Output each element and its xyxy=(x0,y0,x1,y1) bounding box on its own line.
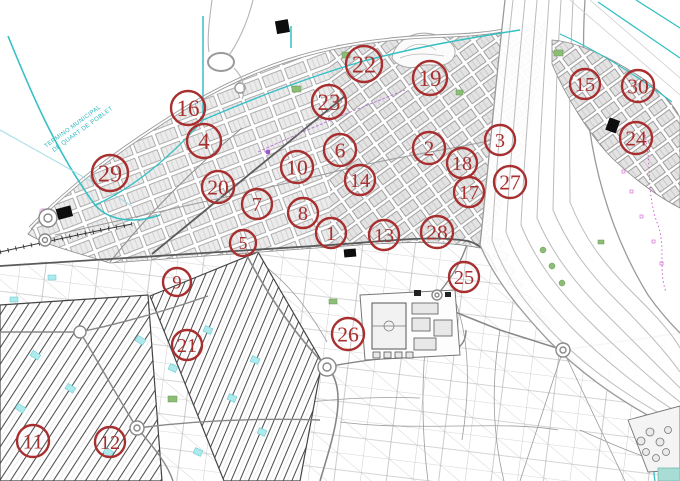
marker-number: 2 xyxy=(424,136,435,160)
marker-number: 15 xyxy=(575,74,595,96)
marker-number: 10 xyxy=(286,155,308,179)
sports-complex xyxy=(360,290,460,360)
marker-number: 1 xyxy=(326,223,336,245)
marker-number: 26 xyxy=(337,322,359,346)
marker-number: 24 xyxy=(625,126,647,150)
marker-number: 27 xyxy=(499,170,521,194)
marker-number: 19 xyxy=(419,66,442,91)
marker-number: 3 xyxy=(495,130,505,152)
city-plan-map: TERMINO MUNICIPAL DE QUART DE POBLET xyxy=(0,0,680,481)
marker-number: 30 xyxy=(627,74,649,98)
marker-number: 7 xyxy=(252,194,262,216)
marker-number: 23 xyxy=(318,90,341,115)
marker-number: 4 xyxy=(198,129,210,154)
marker-number: 11 xyxy=(23,429,44,453)
marker-number: 16 xyxy=(177,96,200,121)
map-viewport: TERMINO MUNICIPAL DE QUART DE POBLET xyxy=(0,0,680,481)
marker-number: 22 xyxy=(352,51,376,78)
marker-number: 29 xyxy=(98,160,122,187)
marker-number: 25 xyxy=(454,267,474,289)
marker-number: 6 xyxy=(335,138,346,162)
marker-number: 28 xyxy=(426,220,448,244)
marker-number: 21 xyxy=(177,335,197,357)
marker-number: 13 xyxy=(374,225,394,247)
marker-number: 17 xyxy=(459,182,479,204)
marker-number: 20 xyxy=(207,175,229,199)
marker-number: 18 xyxy=(452,153,472,175)
marker-number: 12 xyxy=(100,432,120,454)
marker-number: 8 xyxy=(298,203,308,225)
marker-number: 5 xyxy=(239,233,248,253)
marker-number: 9 xyxy=(172,272,181,293)
marker-number: 14 xyxy=(350,170,370,192)
